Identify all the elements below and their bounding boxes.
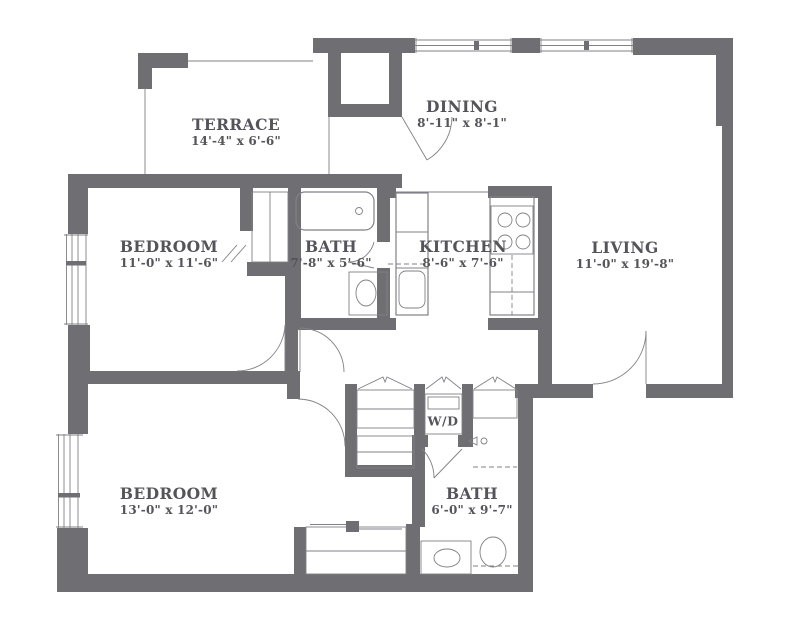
room-dimensions: 7'-8" x 5'-6" xyxy=(290,256,371,270)
room-dimensions: 8'-11" x 8'-1" xyxy=(417,116,507,130)
floor-plan-drawing xyxy=(0,0,800,633)
bedroom1-closet-bifold-door xyxy=(222,245,246,262)
hall-door xyxy=(300,328,344,372)
room-name: BATH xyxy=(431,486,512,502)
room-label-kitchen: KITCHEN 8'-6" x 7'-6" xyxy=(419,239,507,270)
room-label-dining: DINING 8'-11" x 8'-1" xyxy=(417,99,507,130)
floor-plan: TERRACE 14'-4" x 6'-6" DINING 8'-11" x 8… xyxy=(0,0,800,633)
window-icon xyxy=(64,234,88,325)
room-label-bedroom-1: BEDROOM 11'-0" x 11'-6" xyxy=(120,239,218,270)
bath2-toilet-icon xyxy=(473,537,518,567)
bedroom2-closet xyxy=(306,521,406,574)
room-name: LIVING xyxy=(576,240,674,256)
hall-closet-lower xyxy=(357,436,414,468)
window-icon xyxy=(540,38,633,53)
bedroom1-door xyxy=(237,325,285,371)
room-name: TERRACE xyxy=(191,117,281,133)
window-icon xyxy=(56,434,83,528)
bath2-sink-icon xyxy=(421,541,471,574)
bedroom2-door xyxy=(298,399,345,446)
room-name: DINING xyxy=(417,99,507,115)
room-dimensions: 8'-6" x 7'-6" xyxy=(419,256,507,270)
room-dimensions: 14'-4" x 6'-6" xyxy=(191,134,281,148)
room-dimensions: 13'-0" x 12'-0" xyxy=(120,503,218,517)
room-label-living: LIVING 11'-0" x 19'-8" xyxy=(576,240,674,271)
room-label-bedroom-2: BEDROOM 13'-0" x 12'-0" xyxy=(120,486,218,517)
room-label-bath-2: BATH 6'-0" x 9'-7" xyxy=(431,486,512,517)
window-icon xyxy=(415,38,512,53)
room-name: KITCHEN xyxy=(419,239,507,255)
entry-door xyxy=(593,331,646,384)
room-name: BATH xyxy=(290,239,371,255)
room-label-bath-1: BATH 7'-8" x 5'-6" xyxy=(290,239,371,270)
room-label-terrace: TERRACE 14'-4" x 6'-6" xyxy=(191,117,281,148)
bath2-door xyxy=(422,449,462,478)
room-dimensions: 11'-0" x 11'-6" xyxy=(120,256,218,270)
room-dimensions: 6'-0" x 9'-7" xyxy=(431,503,512,517)
bathtub-icon xyxy=(296,192,374,230)
room-name: BEDROOM xyxy=(120,239,218,255)
kitchen-sink-icon xyxy=(399,271,425,308)
room-name: BEDROOM xyxy=(120,486,218,502)
washer-dryer-label: W/D xyxy=(428,414,459,429)
room-dimensions: 11'-0" x 19'-8" xyxy=(576,257,674,271)
hall-closet-upper xyxy=(357,377,414,428)
hall-closet-right xyxy=(469,377,517,467)
bedroom1-closet xyxy=(252,192,288,262)
